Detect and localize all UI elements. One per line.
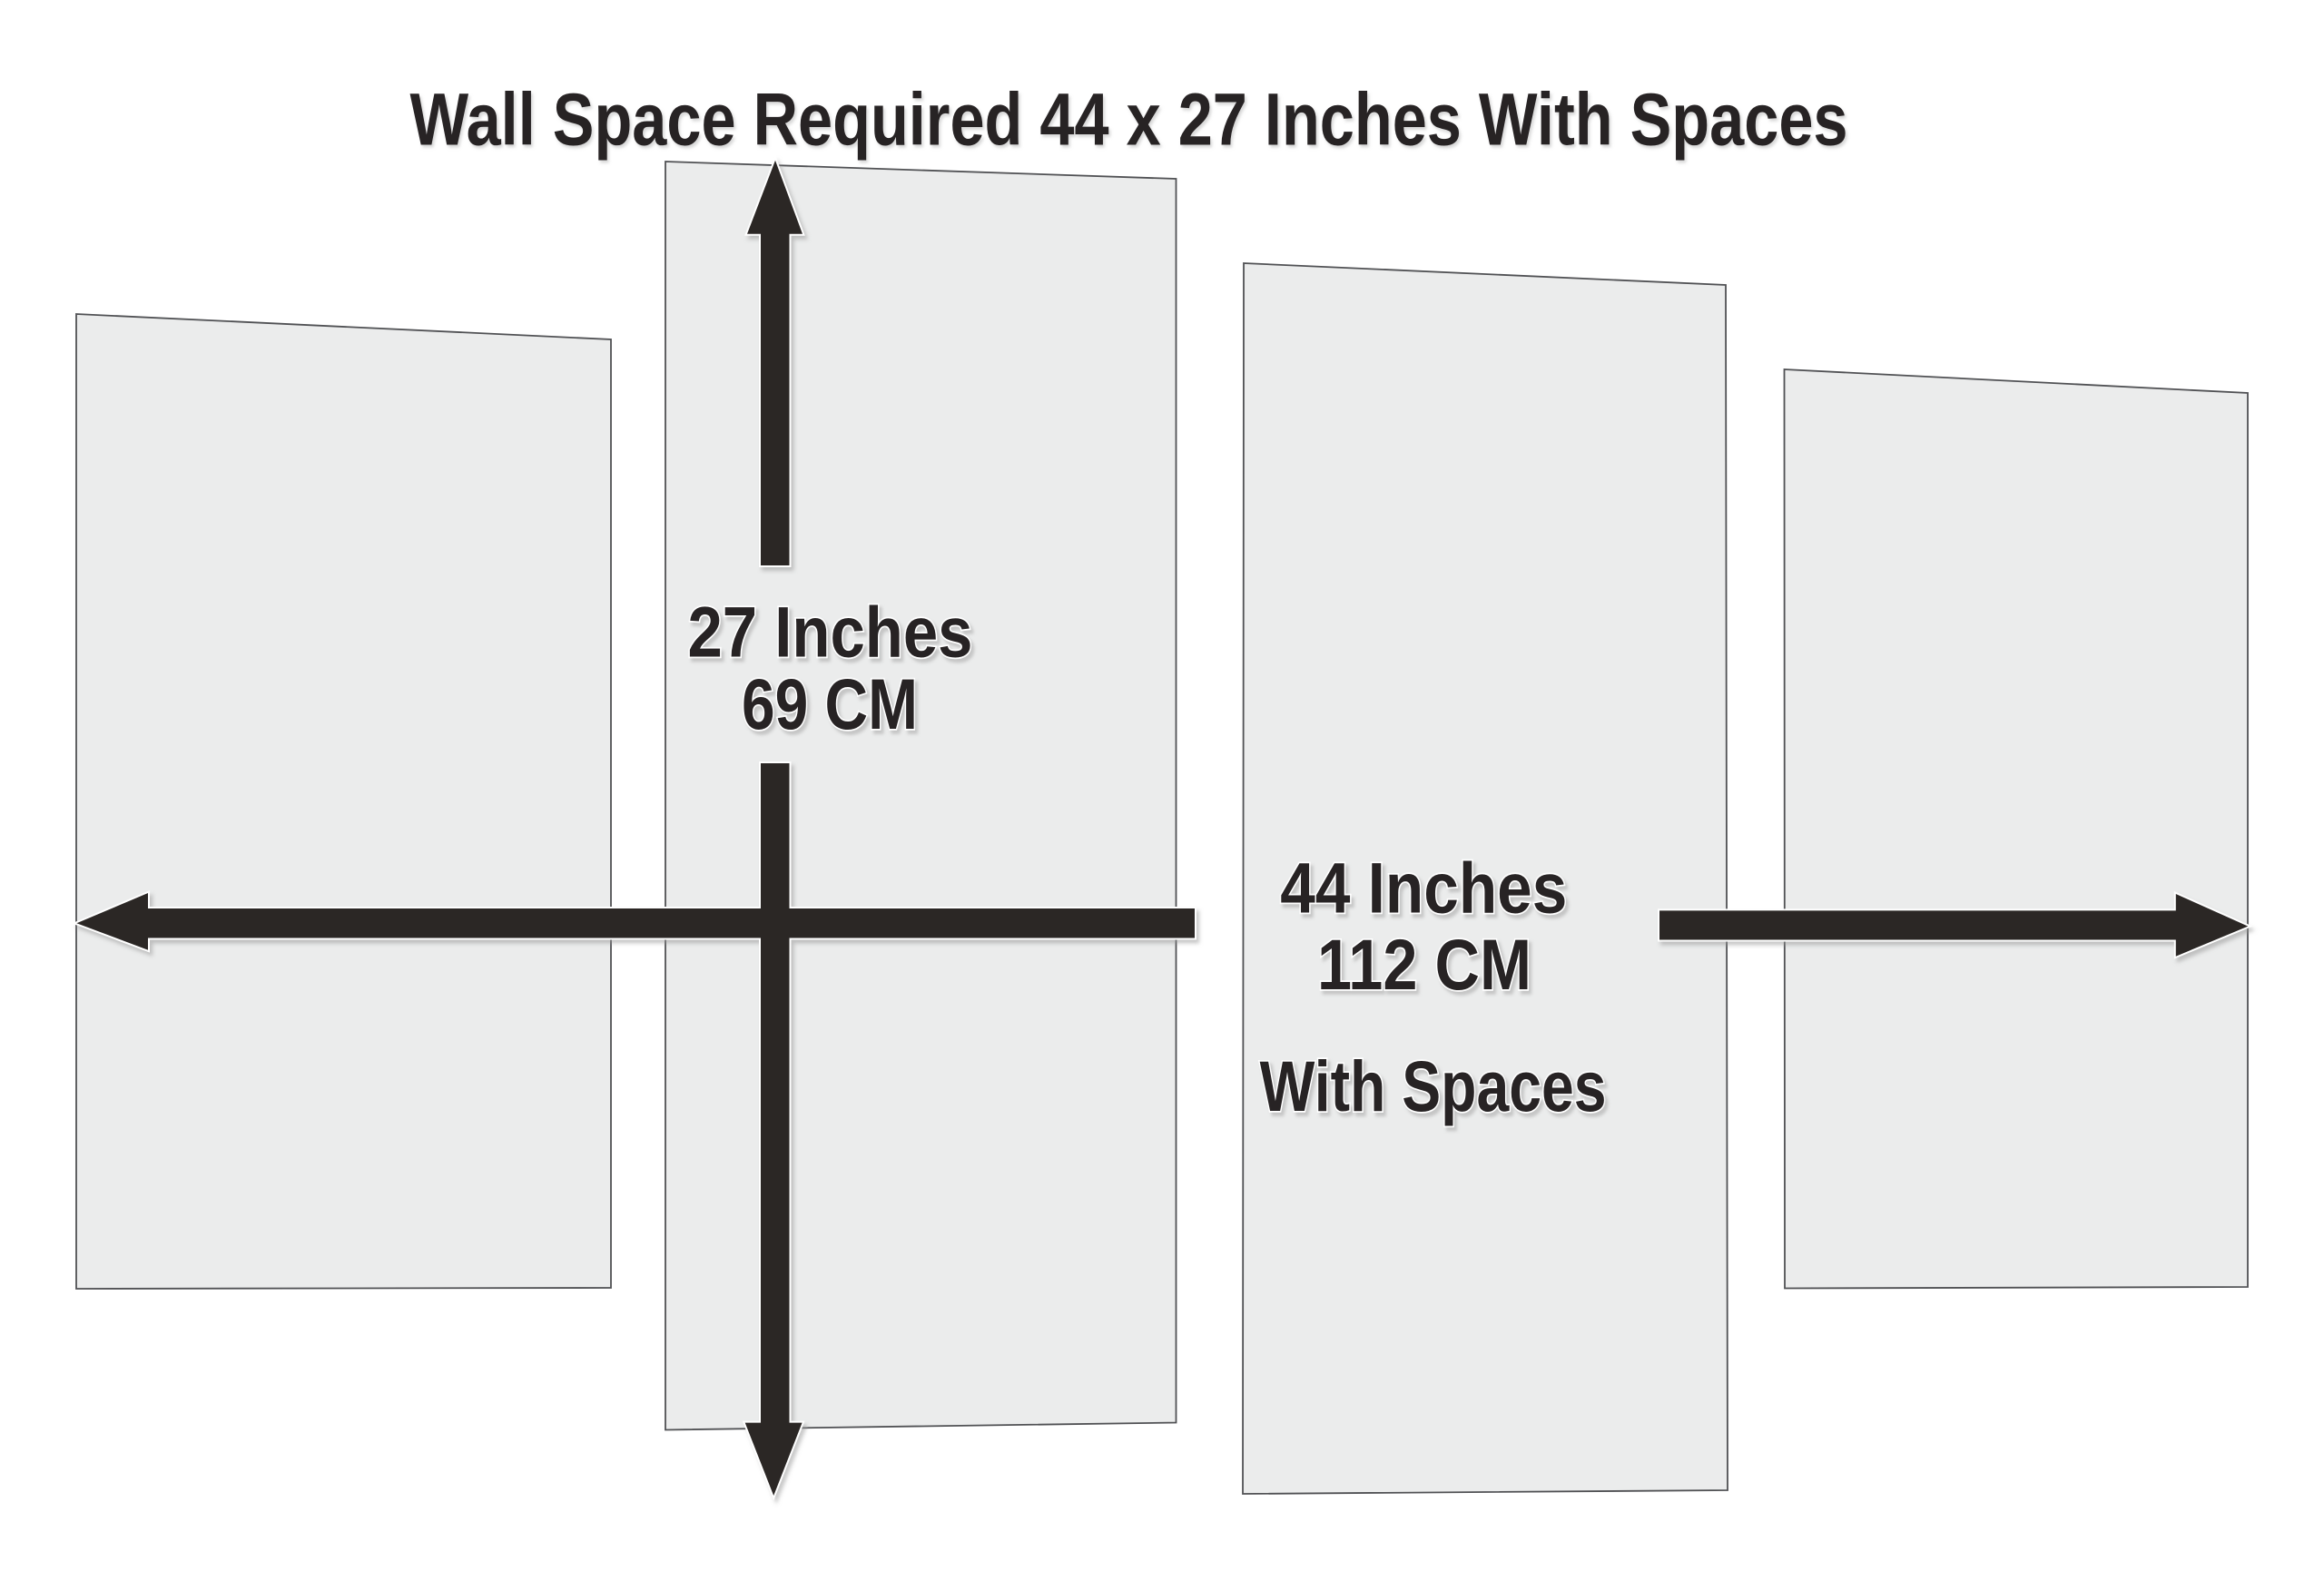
svg-text:With Spaces: With Spaces [1260, 1046, 1607, 1126]
svg-text:Wall Space Required 44 x 27 In: Wall Space Required 44 x 27 Inches With … [410, 78, 1848, 161]
svg-text:112 CM: 112 CM [1317, 924, 1531, 1005]
svg-text:44 Inches: 44 Inches [1280, 848, 1567, 928]
svg-text:27 Inches: 27 Inches [688, 592, 973, 673]
svg-text:69 CM: 69 CM [742, 663, 918, 744]
